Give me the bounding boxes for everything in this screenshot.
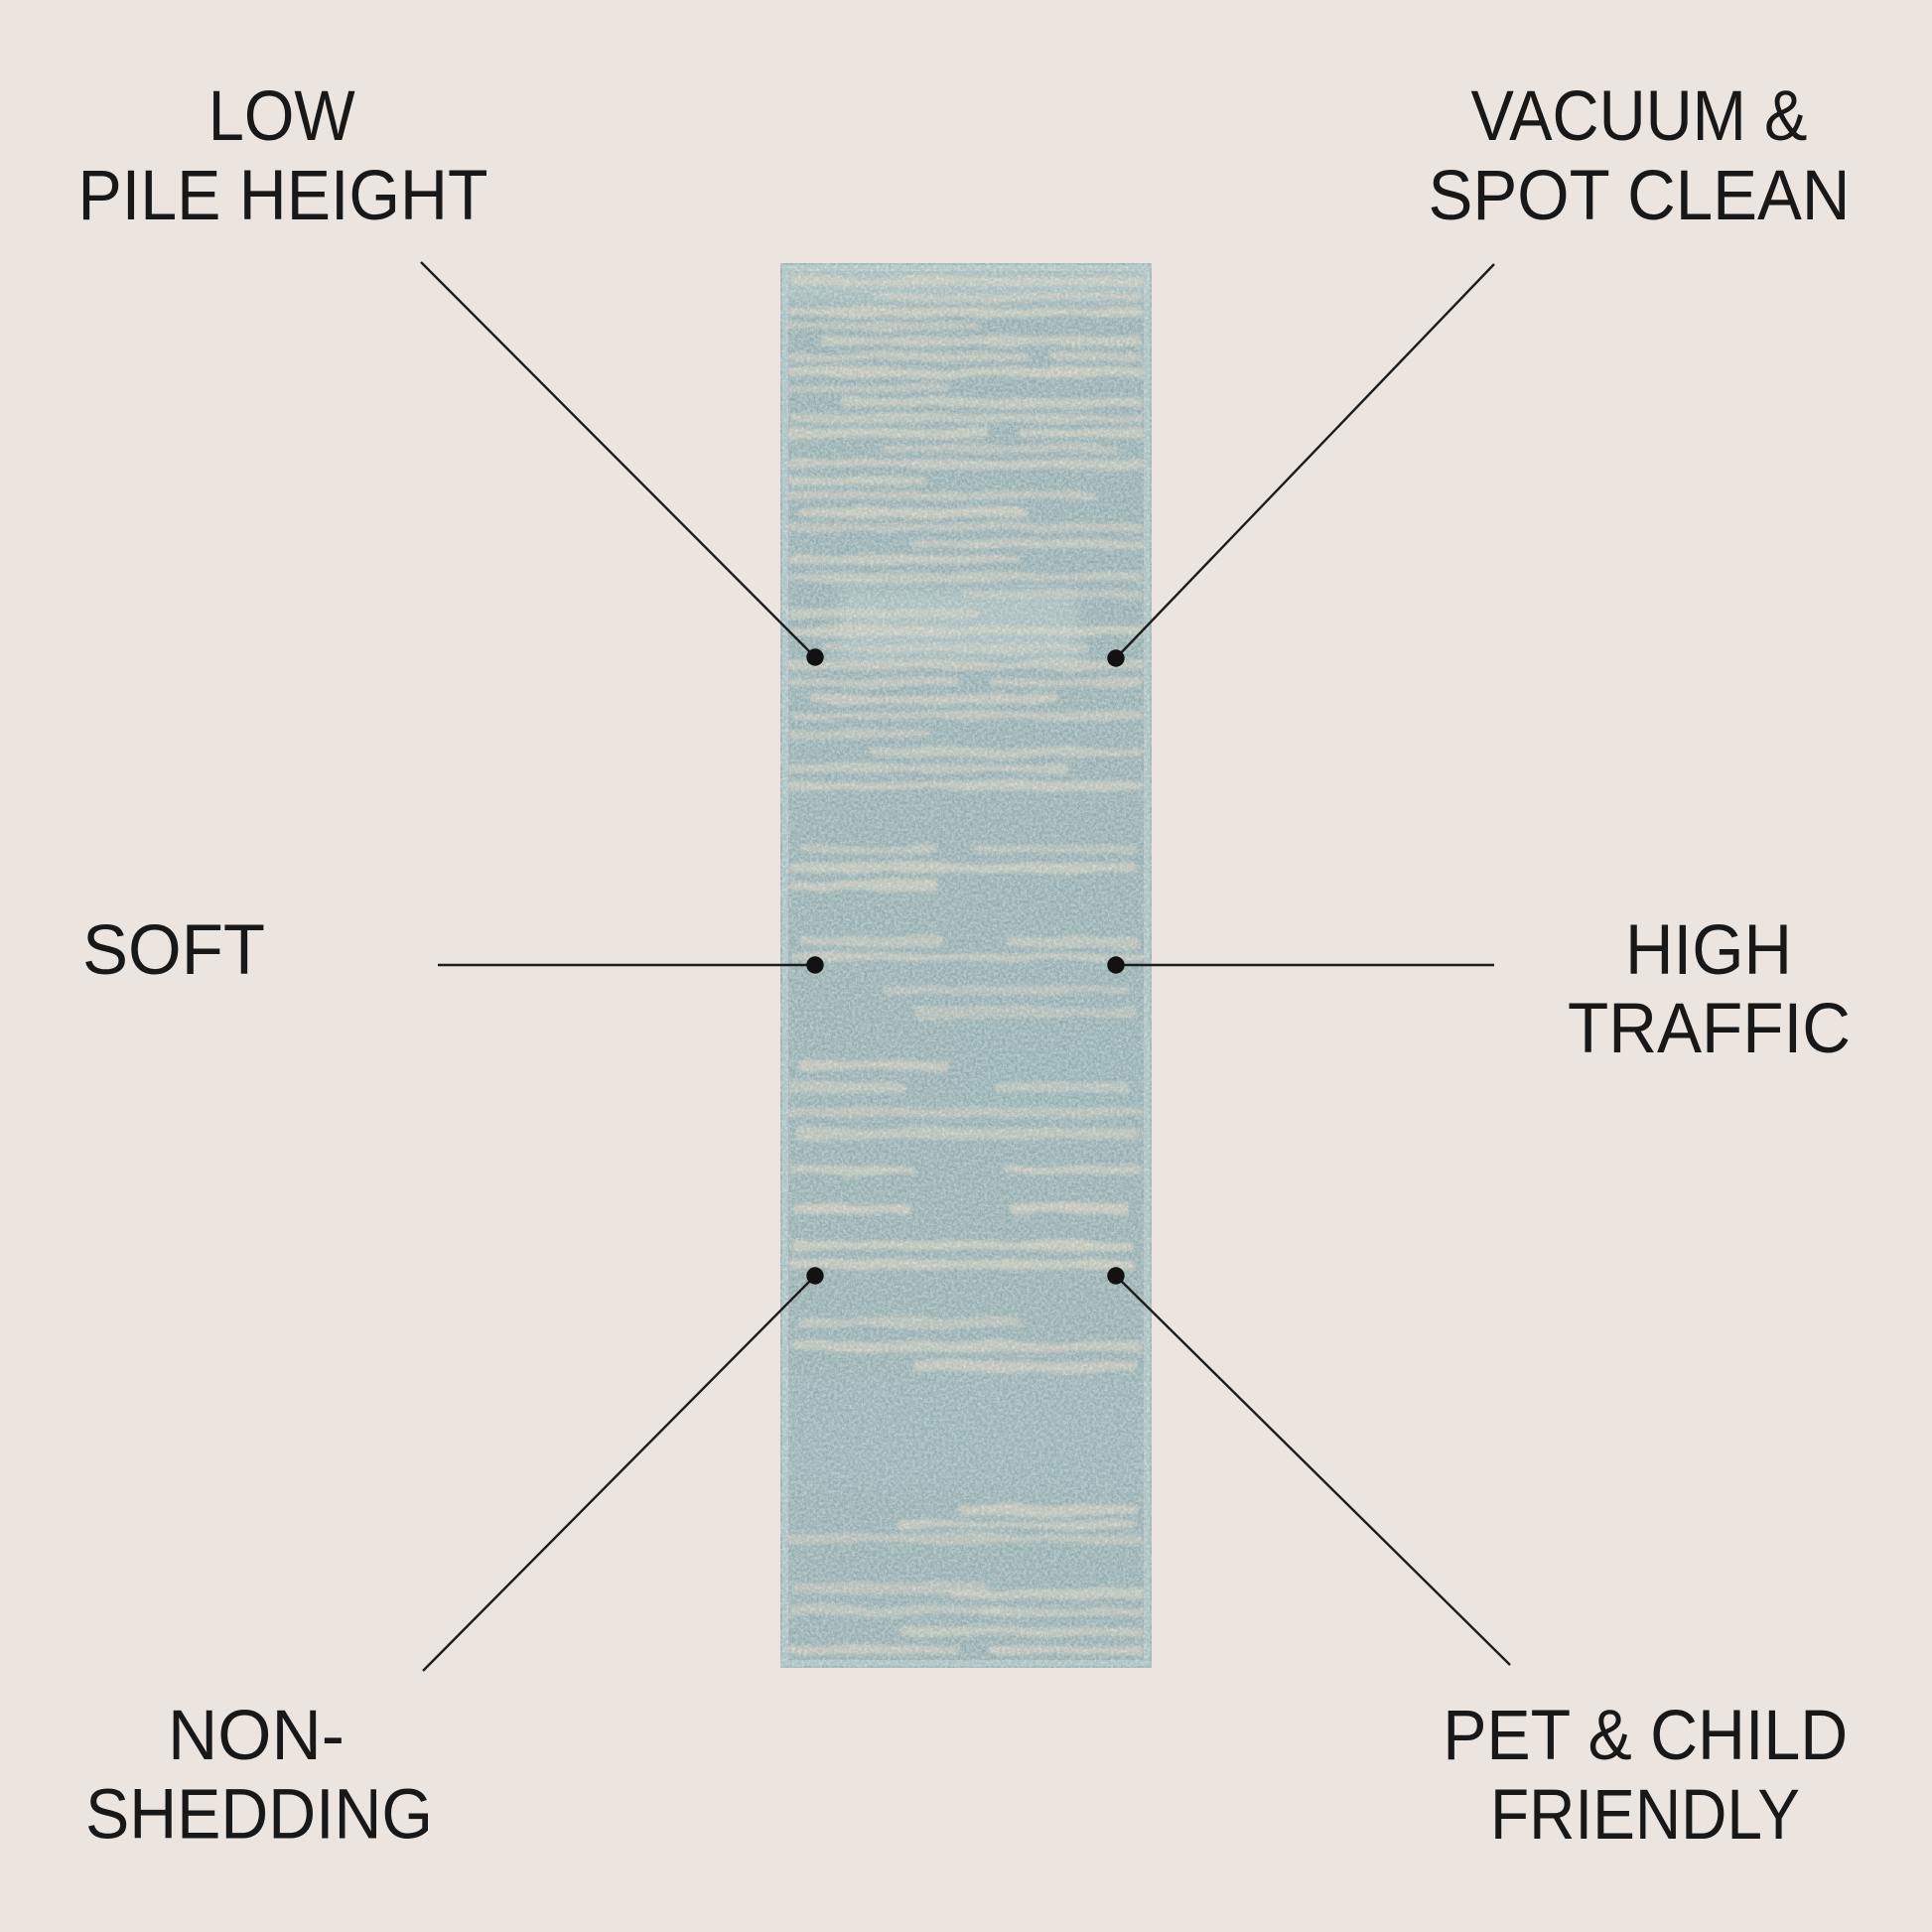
svg-text:FRIENDLY: FRIENDLY: [1490, 1776, 1800, 1855]
svg-text:SHEDDING: SHEDDING: [85, 1776, 433, 1855]
svg-text:HIGH: HIGH: [1625, 911, 1792, 990]
svg-text:TRAFFIC: TRAFFIC: [1568, 990, 1851, 1068]
svg-text:SOFT: SOFT: [82, 911, 265, 990]
svg-text:NON-: NON-: [168, 1697, 345, 1775]
svg-text:VACUUM &: VACUUM &: [1471, 77, 1808, 156]
svg-text:SPOT CLEAN: SPOT CLEAN: [1429, 157, 1851, 235]
svg-text:LOW: LOW: [208, 77, 355, 156]
svg-text:PILE HEIGHT: PILE HEIGHT: [78, 157, 488, 235]
svg-text:PET & CHILD: PET & CHILD: [1443, 1697, 1848, 1775]
